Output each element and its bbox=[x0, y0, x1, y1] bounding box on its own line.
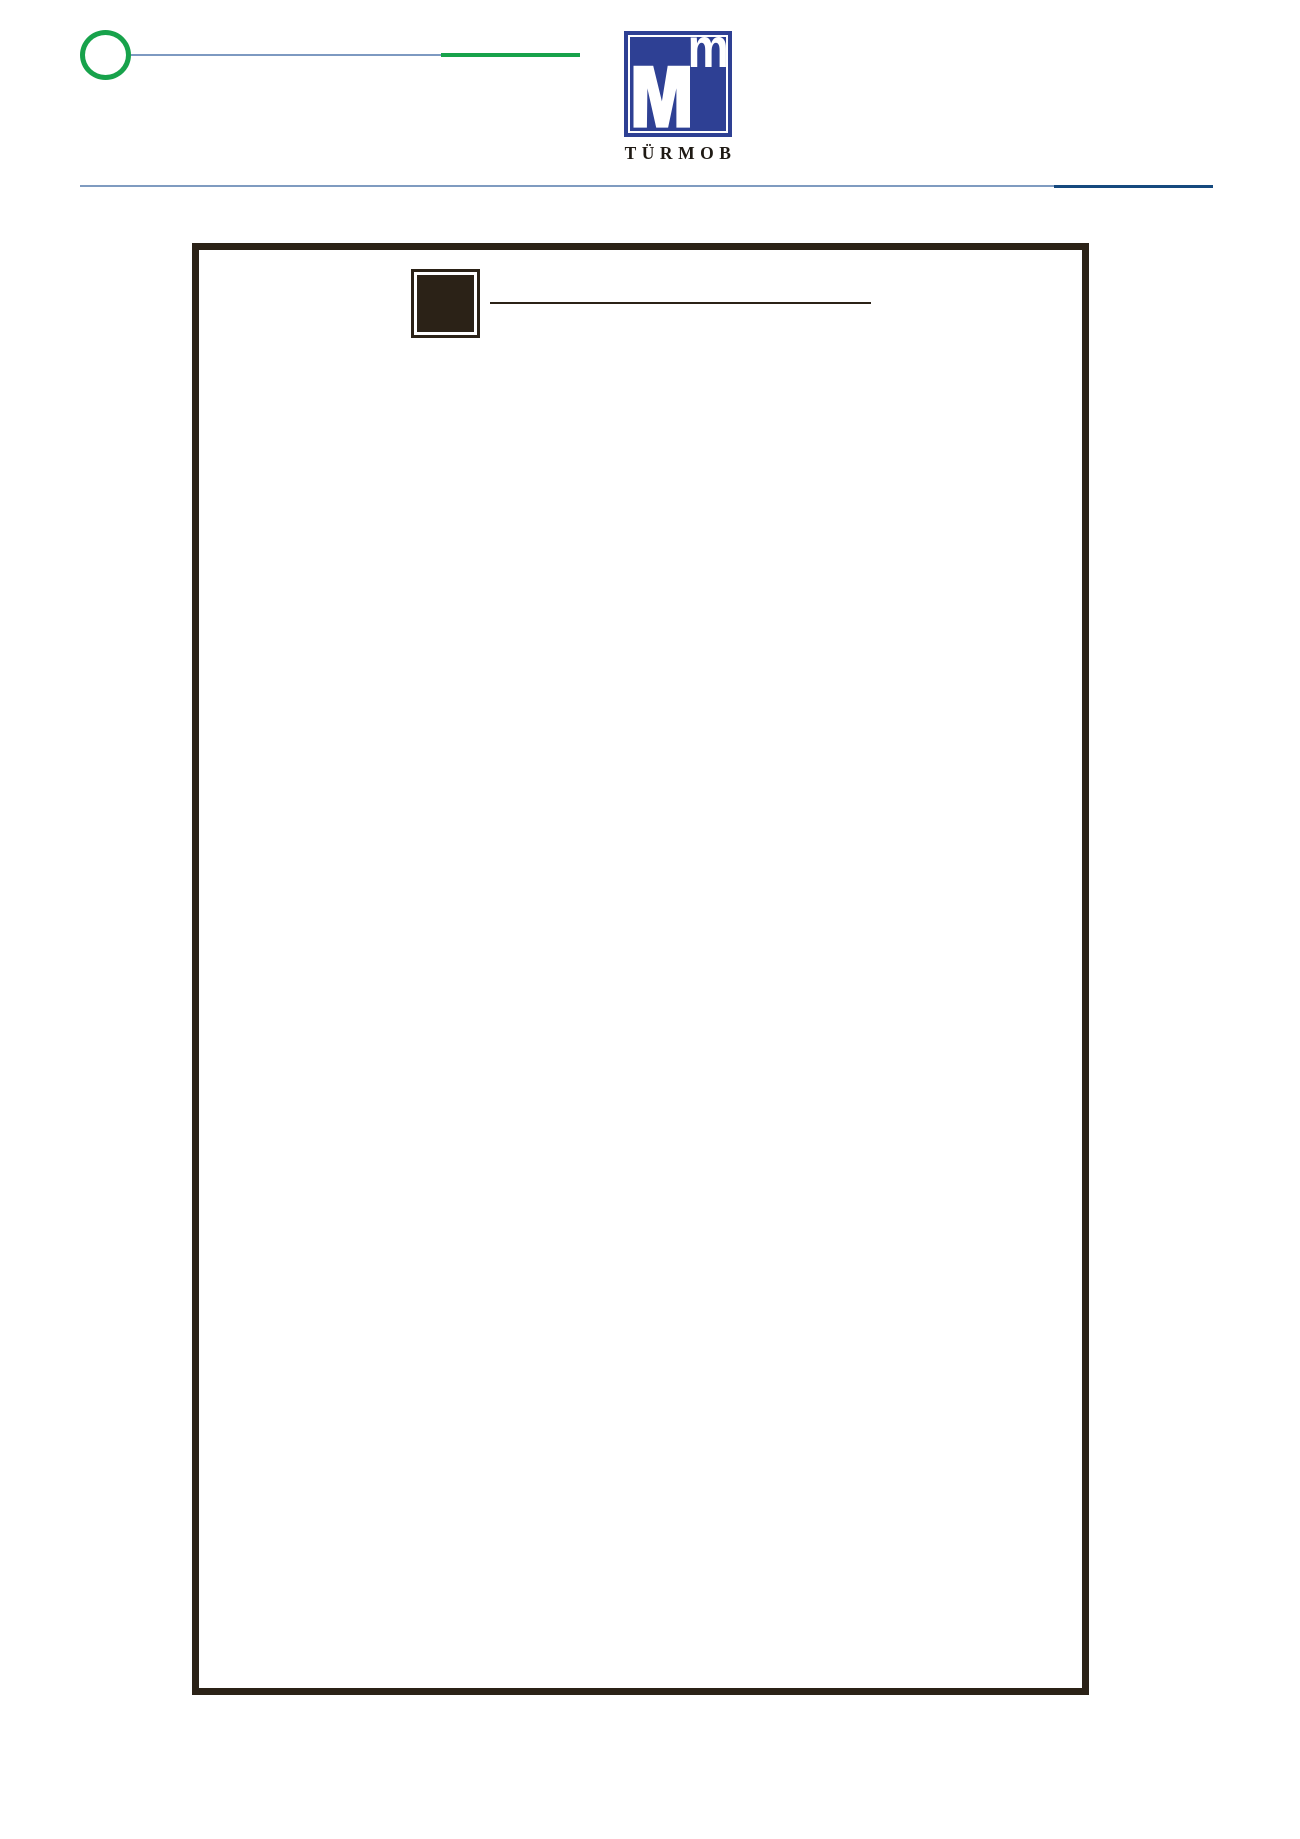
svg-text:m: m bbox=[688, 31, 729, 79]
